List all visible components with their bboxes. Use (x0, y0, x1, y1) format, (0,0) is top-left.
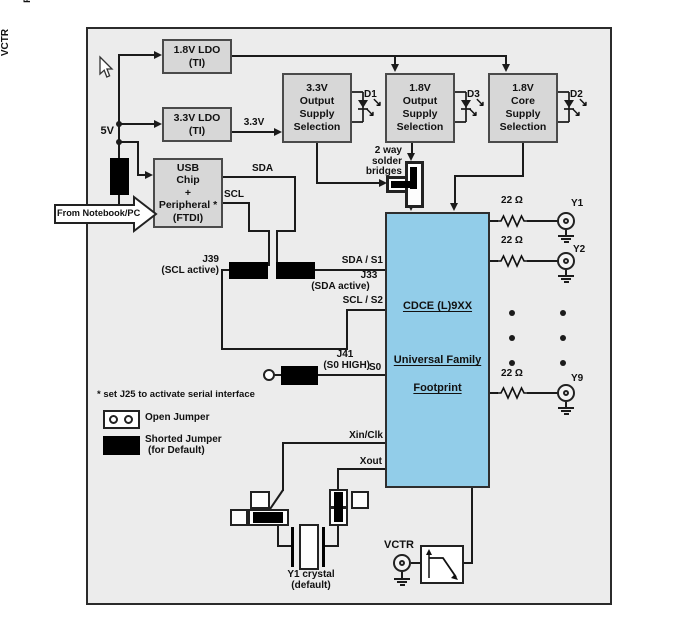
jumper-j23 (110, 158, 129, 195)
block-label: Supply (505, 108, 540, 121)
wire (337, 468, 339, 489)
ground-icon (400, 584, 405, 586)
wire (346, 309, 348, 350)
crystal-body (299, 524, 319, 570)
ellipsis-dot (560, 360, 566, 366)
eval-board-block-diagram: 1.8V LDO (TI) 3.3V LDO (TI) 3.3V Output … (0, 0, 695, 641)
vctr-pin-rot-label: VCTR (0, 24, 13, 61)
jumper-j39 (229, 262, 268, 279)
resistor-icon (497, 214, 527, 228)
mouse-cursor-icon (99, 56, 115, 80)
block-label: Peripheral * (159, 199, 217, 211)
block-label: (TI) (189, 57, 205, 70)
led-emission-arrow-icon: ↘ (571, 106, 581, 118)
chip-footprint: Footprint (387, 382, 488, 394)
chip-family: Universal Family (387, 354, 488, 366)
supply-select-1v8-output-block: 1.8V Output Supply Selection (385, 73, 455, 143)
scl-s2-label: SCL / S2 (330, 296, 383, 307)
resistor-icon (497, 254, 527, 268)
arrowhead-icon (154, 120, 162, 128)
crystal-plate (322, 527, 325, 567)
block-label: 3.3V LDO (174, 112, 221, 125)
vctr-filter-curve-icon (422, 547, 462, 582)
ground-icon (561, 410, 571, 412)
block-label: 1.8V (409, 82, 431, 95)
wire (454, 175, 524, 177)
ground-icon (397, 581, 407, 583)
usb-chip-block: USB Chip + Peripheral * (FTDI) (153, 158, 223, 228)
j41-sub-label: (S0 HIGH) (310, 361, 370, 372)
junction-dot (116, 121, 122, 127)
ground-icon (394, 578, 410, 580)
cdce-chip-block: CDCE (L)9XX Universal Family Footprint (385, 212, 490, 488)
ldo-1v8-block: 1.8V LDO (TI) (162, 39, 232, 74)
r22-label: 22 Ω (492, 236, 532, 247)
wire (294, 176, 296, 232)
xin-jumper-bar (253, 512, 283, 523)
footnote: * set J25 to activate serial interface (97, 390, 255, 400)
scl-label: SCL (224, 190, 244, 201)
led-d3-label: D3 (467, 90, 480, 101)
wire (268, 230, 270, 266)
ground-icon (564, 413, 569, 415)
crystal-plate (291, 527, 294, 567)
ellipsis-dot (509, 335, 515, 341)
open-jumper-icon (103, 410, 140, 429)
wire (232, 131, 275, 133)
wire (277, 545, 292, 547)
j39-label: J39 (160, 255, 219, 266)
wire (282, 442, 284, 491)
j33-sub-label: (SDA active) (303, 282, 378, 293)
block-label: + (185, 187, 191, 199)
block-label: Core (511, 95, 535, 108)
wire (276, 230, 296, 232)
block-label: Output (300, 95, 334, 108)
block-label: Supply (402, 108, 437, 121)
ground-icon (558, 407, 574, 409)
solder-pad (230, 509, 248, 526)
chip-name: CDCE (L)9XX (387, 300, 488, 312)
sda-s1-label: SDA / S1 (330, 256, 383, 267)
arrowhead-icon (154, 51, 162, 59)
xout-label: Xout (330, 457, 382, 468)
wire (527, 220, 558, 222)
ground-icon (561, 278, 571, 280)
supply-select-3v3-block: 3.3V Output Supply Selection (282, 73, 352, 143)
block-label: (FTDI) (173, 212, 203, 224)
wire (337, 526, 339, 547)
bnc-y9 (557, 384, 575, 402)
j41-label: J41 (332, 350, 358, 361)
wire (276, 230, 278, 266)
shorted-jumper-sub-label: (for Default) (148, 446, 205, 457)
vctr-conn-label: VCTR (384, 540, 414, 552)
led-d2-label: D2 (570, 90, 583, 101)
arrowhead-icon (145, 171, 153, 179)
resistor-icon (497, 386, 527, 400)
rail-3v3-label: 3.3V (234, 118, 274, 129)
arrowhead-icon (274, 128, 282, 136)
ellipsis-dot (560, 310, 566, 316)
from-pc-label: From Notebook/PC (57, 209, 140, 219)
wire (119, 141, 139, 143)
bnc-y1 (557, 212, 575, 230)
xin-label: Xin/Clk (330, 431, 383, 442)
wire (119, 123, 155, 125)
wire (119, 54, 155, 56)
block-label: Chip (176, 174, 199, 186)
ground-icon (558, 235, 574, 237)
ground-icon (564, 241, 569, 243)
arrowhead-icon (391, 64, 399, 72)
ground-icon (564, 281, 569, 283)
block-label: 1.8V LDO (174, 44, 221, 57)
led-emission-arrow-icon: ↘ (365, 106, 375, 118)
block-label: Selection (294, 121, 341, 134)
wire (222, 202, 250, 204)
sda-label: SDA (252, 164, 273, 175)
j39-sub-label: (SCL active) (146, 266, 219, 277)
wire (454, 175, 456, 204)
led-emission-arrow-icon: ↘ (468, 106, 478, 118)
block-label: 1.8V (512, 82, 534, 95)
wire (222, 176, 296, 178)
wire (527, 260, 558, 262)
supply-select-1v8-core-block: 1.8V Core Supply Selection (488, 73, 558, 143)
solder-bridge-bar (410, 167, 417, 189)
arrowhead-icon (502, 64, 510, 72)
wire (411, 562, 420, 564)
ellipsis-dot (509, 310, 515, 316)
wire (248, 230, 270, 232)
bnc-vctr (393, 554, 411, 572)
block-label: (TI) (189, 125, 205, 138)
wire (522, 143, 524, 177)
y2-label: Y2 (573, 245, 585, 256)
j33-label: J33 (356, 271, 382, 282)
block-label: 3.3V (306, 82, 328, 95)
wire (463, 562, 473, 564)
wire (232, 55, 507, 57)
open-jumper-label: Open Jumper (145, 413, 209, 424)
wire (527, 392, 558, 394)
solder-bridge-note: 2 waysolderbridges (352, 146, 402, 178)
wire (221, 269, 223, 350)
y9-label: Y9 (571, 374, 583, 385)
ldo-3v3-block: 3.3V LDO (TI) (162, 107, 232, 142)
r22-label: 22 Ω (492, 369, 532, 380)
y1-label: Y1 (571, 199, 583, 210)
block-label: Output (403, 95, 437, 108)
wire (324, 545, 339, 547)
wire (317, 374, 385, 376)
open-terminal-1v8 (263, 369, 275, 381)
wire (282, 442, 385, 444)
block-label: Selection (500, 121, 547, 134)
s0-label: S0 (369, 363, 381, 374)
arrowhead-icon (450, 203, 458, 211)
wire (137, 141, 139, 176)
shorted-jumper-icon (103, 436, 140, 455)
wire (316, 182, 379, 184)
shorted-jumper-label: Shorted Jumper (145, 435, 222, 446)
wire (316, 143, 318, 184)
wire (346, 309, 385, 311)
wire (471, 488, 473, 564)
v5-label: 5V (94, 126, 114, 138)
jumper-j33 (276, 262, 315, 279)
wire (248, 202, 250, 232)
solder-pad (351, 491, 369, 509)
block-label: Selection (397, 121, 444, 134)
solder-pad (250, 491, 270, 509)
j23-rot-label: J23(USB Power) (0, 0, 22, 13)
block-label: Supply (299, 108, 334, 121)
ground-icon (561, 238, 571, 240)
wire (277, 526, 279, 547)
r22-label: 22 Ω (492, 196, 532, 207)
ellipsis-dot (560, 335, 566, 341)
crystal-label: Y1 crystal(default) (275, 570, 347, 591)
wire (337, 468, 385, 470)
xout-jumper-bar (334, 492, 343, 522)
block-label: USB (177, 162, 199, 174)
ellipsis-dot (509, 360, 515, 366)
ground-icon (558, 275, 574, 277)
arrowhead-icon (407, 153, 415, 161)
wire (221, 348, 348, 350)
led-d1-label: D1 (364, 90, 377, 101)
